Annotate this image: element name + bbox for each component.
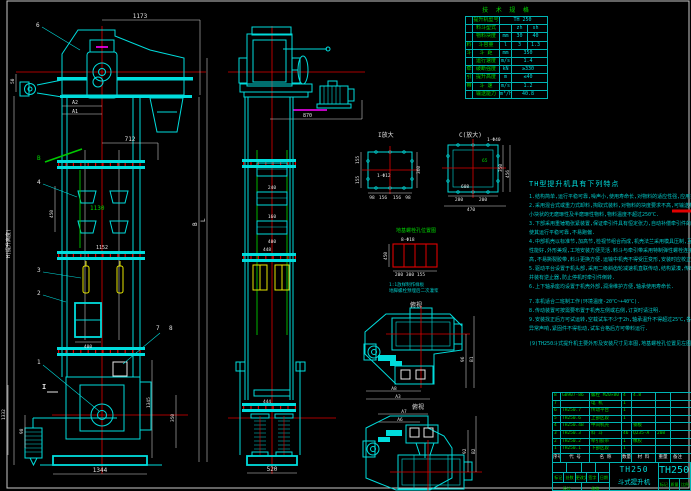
dim-240: 240 xyxy=(268,185,276,191)
bom-cell: 牵引胶带 xyxy=(590,439,622,446)
note-line: 1.结构简单,运行平稳可靠,噪声小,使用寿命长,对物料的适应性强,应用范围广. xyxy=(529,193,690,202)
dim-50: 50 xyxy=(10,78,16,84)
dim-a1: A1 xyxy=(72,109,78,115)
bom-header-cell: 序号 xyxy=(553,454,561,462)
bom-row: 6TH250.7传动平台1 xyxy=(553,408,691,416)
anchor-dim-155: 155 xyxy=(417,272,425,278)
balloon-7: 7 xyxy=(156,325,160,332)
bom-cell xyxy=(656,416,671,423)
spec-cell: 350 xyxy=(511,50,544,57)
bom-cell: 1 xyxy=(622,416,632,423)
spec-row: 料斗容量l31.3 xyxy=(466,41,547,49)
dim-a6: A6 xyxy=(397,417,403,423)
bom-cell xyxy=(656,446,671,453)
dim-1332: 1332 xyxy=(1,409,7,420)
bom-cell: TH250.6 xyxy=(561,416,590,423)
spec-cell: 料斗型式 xyxy=(472,25,499,32)
spec-cell: 3 xyxy=(511,42,527,49)
spec-cell: 斗容量 xyxy=(472,42,499,49)
dim-608: 608 xyxy=(461,184,469,190)
bom-cell: TH250.1 xyxy=(561,446,590,453)
dim-b2: B2 xyxy=(471,448,477,454)
spec-cell: 30 xyxy=(511,33,527,40)
bom-row: 8GB907-86螺栓 M20×8044.8 xyxy=(553,393,691,401)
bom-cell xyxy=(671,401,684,408)
spec-row: 物料块度mm3040 xyxy=(466,32,547,40)
spec-row: 牵破断强度kN≥330 xyxy=(466,65,547,73)
bom-row: 7电 机1 xyxy=(553,401,691,409)
note-line: 4.中部机壳以标准节,加高节,检视节组合而成,机壳法兰采用模具压制,互换性好,密… xyxy=(529,238,690,247)
spec-cell: 运行速度 xyxy=(472,58,499,65)
spec-cell: 1.4 xyxy=(511,58,544,65)
note-line: 高,不易撕裂胶带,料斗更换方便.运输中机壳不得受压变形,安装时应校正垂直度. xyxy=(529,256,690,265)
detail-c-title: C(放大) xyxy=(459,131,482,139)
title-block-cell: 标记 xyxy=(659,479,670,491)
note-line: 8.传动装置可按需要布置于机壳左侧或右侧,订货时请注明. xyxy=(529,307,690,316)
bom-cell: 4 xyxy=(553,423,561,430)
dim-470: 470 xyxy=(467,207,475,213)
drive-station-top-view-2: 俯视 A7 A6 92 B2 xyxy=(363,403,482,491)
anchor-note-2: 地脚螺栓预埋后二次灌浆 xyxy=(389,287,439,294)
anchor-note-1: 1:1放样制作样板 xyxy=(389,281,425,288)
spec-cell: 1.3 xyxy=(527,42,543,49)
dim-1345: 1345 xyxy=(146,397,152,408)
spec-cell: 斗 距 xyxy=(472,50,499,57)
product-model: TH250 xyxy=(610,463,658,476)
bom-cell: 7 xyxy=(553,401,561,408)
spec-cell: l xyxy=(499,42,511,49)
title-block-product: TH250 斗式提升机 xyxy=(610,463,659,490)
spec-cell: mm xyxy=(499,33,511,40)
bom-row: 3TH250.3料 斗46Q235-A208 xyxy=(553,431,691,439)
spec-row: 带斗 速m/s1.2 xyxy=(466,82,547,90)
bom-cell: 8 xyxy=(553,393,561,400)
bom-cell: 上部区段 xyxy=(590,416,622,423)
dim-160: 160 xyxy=(268,214,276,220)
note-line: 3.下部采用重锤箱张紧装置,保证牵引件具有恒定张力,自动补偿牵引件的永久伸长, xyxy=(529,220,690,229)
bom-cell: 中间机壳 xyxy=(590,423,622,430)
spec-cell: 提升高度 xyxy=(472,74,499,81)
balloon-3: 3 xyxy=(37,267,41,274)
dim-350c: 350 xyxy=(498,164,504,172)
note-line: 使其运行平稳可靠,不易跑偏. xyxy=(529,229,690,238)
dim-96: 96 xyxy=(460,356,466,362)
title-block-row: 设计 校核 xyxy=(553,483,609,491)
spec-cell: mm xyxy=(499,50,511,57)
bom-cell: Q235-A xyxy=(632,431,656,438)
anchor-dim-450: 450 xyxy=(383,252,389,260)
dim-98: 98 xyxy=(19,428,25,434)
title-block-cell: 标记 xyxy=(553,473,564,482)
anchor-bolt-plan: 地基螺栓孔位置图 8-Φ18 200 300 155 450 1:1放样制作样板… xyxy=(383,227,439,294)
cad-drawing-canvas[interactable]: 1173 6 50 A2 A1 1130 450 712 4 xyxy=(0,0,691,491)
anchor-dim-300: 300 xyxy=(406,272,414,278)
bom-cell xyxy=(671,416,684,423)
dim-letter-l: L xyxy=(200,218,207,222)
detail-c-hole-note: 1-Φ40 xyxy=(487,137,501,143)
spec-cell: TH 250 xyxy=(499,17,545,24)
title-block-cell: 设计 xyxy=(553,483,582,491)
dim-448: 448 xyxy=(263,247,271,253)
bom-cell: 1 xyxy=(622,401,632,408)
dim-a2: A2 xyxy=(72,100,78,106)
note-line: (9)TH250斗式提升机主要外形及安装尺寸见本图,地基螺栓孔位置见左图所示 供… xyxy=(529,340,690,349)
dim-450: 450 xyxy=(49,210,55,218)
bom-header-cell: 数量 xyxy=(622,454,632,462)
note-line: 9.安装找正后方可试运转,空载试车不少于2h,轴承温升不得超过25℃,各部位不得… xyxy=(529,316,690,325)
bom-cell: 料 斗 xyxy=(590,431,622,438)
title-block-cell: 日期 xyxy=(599,473,609,482)
bom-cell: TH250.2 xyxy=(561,439,590,446)
front-elevation-view: 1173 6 50 A2 A1 1130 450 712 4 xyxy=(1,13,207,474)
detail-c-view: C(放大) 1-Φ40 608 65 280 200 470 350 456 xyxy=(442,131,511,213)
drive2-label: 俯视 xyxy=(412,403,424,411)
spec-cell: 1.2 xyxy=(511,83,544,90)
dim-155b: 155 xyxy=(355,176,361,184)
title-block-cell xyxy=(567,463,581,472)
dim-1344: 1344 xyxy=(93,467,108,474)
bom-cell xyxy=(622,423,632,430)
dim-1152: 1152 xyxy=(96,245,108,251)
bom-cell: TH250.7 xyxy=(561,408,590,415)
dim-a8: A8 xyxy=(391,386,397,392)
bom-cell: 6 xyxy=(553,408,561,415)
bom-cell: 1 xyxy=(622,408,632,415)
bom-cell: 螺栓 M20×80 xyxy=(590,393,622,400)
dim-200: 200 xyxy=(479,197,487,203)
spec-cell: 40.8 xyxy=(511,91,544,98)
bom-cell: 传动平台 xyxy=(590,408,622,415)
parts-list-table: 8GB907-86螺栓 M20×8044.8 7电 机1 6TH250.7传动平… xyxy=(552,392,691,463)
spec-row: 料斗型式zhsh xyxy=(466,24,547,32)
bom-cell: 208 xyxy=(656,431,671,438)
notes-title: TH型提升机具有下列特点 xyxy=(529,179,690,189)
dim-520: 520 xyxy=(267,466,278,473)
dim-letter-b: B xyxy=(192,222,199,226)
bom-header-cell: 重量 xyxy=(656,454,671,462)
bom-cell xyxy=(561,401,590,408)
dim-1173: 1173 xyxy=(133,13,148,20)
anchor-dim-200: 200 xyxy=(395,272,403,278)
bom-row: 5TH250.6上部区段1 xyxy=(553,416,691,424)
dim-1130: 1130 xyxy=(90,205,105,212)
bom-cell xyxy=(656,439,671,446)
bom-header-cell: 材 料 xyxy=(632,454,656,462)
bom-cell: 4.8 xyxy=(632,393,656,400)
feature-notes: TH型提升机具有下列特点 1.结构简单,运行平稳可靠,噪声小,使用寿命长,对物料… xyxy=(529,179,690,349)
bom-header-cell: 备注 xyxy=(671,454,684,462)
dim-65: 65 xyxy=(482,158,488,164)
bom-cell: 橡胶 xyxy=(632,439,656,446)
bom-cell: 3 xyxy=(553,431,561,438)
bom-cell: 下部区段 xyxy=(590,446,622,453)
dim-a7: A7 xyxy=(401,409,407,415)
spec-cell: ≤40 xyxy=(511,74,544,81)
bom-cell: 钢板 xyxy=(632,423,656,430)
note-line: 并装有逆止器,防止停机时牵引件倒转. xyxy=(529,274,690,283)
spec-cell: m xyxy=(499,74,511,81)
balloon-8: 8 xyxy=(169,325,173,332)
spec-cell: zh xyxy=(511,25,527,32)
bom-cell: 1 xyxy=(622,446,632,453)
bom-cell xyxy=(671,423,684,430)
bom-cell xyxy=(632,416,656,423)
dim-400: 400 xyxy=(84,344,92,350)
balloon-2: 2 xyxy=(37,290,41,297)
section-i-label: I xyxy=(42,383,46,391)
spec-cell: m³/h xyxy=(499,91,511,98)
bom-row: 2TH250.2牵引胶带1橡胶 xyxy=(553,439,691,447)
bom-cell xyxy=(656,423,671,430)
drawing-number: TH250 xyxy=(659,463,690,479)
spec-row: 引提升高度m≤40 xyxy=(466,73,547,81)
dim-98b: 98 xyxy=(405,195,411,201)
note-line: 2.采用混合式或重力式卸料,掏取式装料,对物料的块度要求不高,可输送粉状,粒状及 xyxy=(529,202,690,211)
note-line: 异常声响,紧固件不得松动,试车合格后方可带料运行. xyxy=(529,325,690,334)
bom-header-cell: 名 称 xyxy=(590,454,622,462)
anchor-plan-title: 地基螺栓孔位置图 xyxy=(396,227,436,234)
bom-cell xyxy=(656,401,671,408)
dim-98a: 98 xyxy=(369,195,375,201)
dim-155a: 155 xyxy=(355,156,361,164)
side-elevation-view: 870 240 160 400 448 444 xyxy=(228,26,365,474)
note-line-text: 5.驱动平台设置于机头部,采用二级斜齿轮减速机直联传动,结构紧凑,传动效率高 xyxy=(529,266,691,272)
bom-cell: TH250.3 xyxy=(561,431,590,438)
bom-cell: 1 xyxy=(553,446,561,453)
title-block-cell xyxy=(596,463,609,472)
bom-cell: 2 xyxy=(553,439,561,446)
note-line: 5.驱动平台设置于机头部,采用二级斜齿轮减速机直联传动,结构紧凑,传动效率高(见… xyxy=(529,265,690,274)
spec-cell: m/s xyxy=(499,83,511,90)
bom-cell xyxy=(656,393,671,400)
title-block-cell: 比例 xyxy=(680,479,690,491)
spec-row: 输送能力m³/h40.8 xyxy=(466,90,547,98)
bom-cell xyxy=(656,408,671,415)
spec-row: 运行速度m/s1.4 xyxy=(466,57,547,65)
balloon-6: 6 xyxy=(36,22,40,29)
title-block-row xyxy=(553,463,609,473)
bom-cell: 46 xyxy=(622,431,632,438)
spec-row: 提升机型号TH 250 xyxy=(466,17,547,24)
drive-station-top-view-1: 俯视 96 B1 A8 A3 xyxy=(364,301,475,400)
height-note: H(提升高度) xyxy=(5,229,12,258)
bom-cell: TH250.4B xyxy=(561,423,590,430)
spec-cell: ≥330 xyxy=(511,66,544,73)
bom-cell xyxy=(671,393,684,400)
dim-712: 712 xyxy=(125,136,136,143)
note-line: 7.本机适合二班制工作(环境温度-20℃~+40℃). xyxy=(529,298,690,307)
dim-456: 456 xyxy=(505,170,511,178)
spec-cell: 40 xyxy=(527,33,543,40)
anchor-hole-note: 8-Φ18 xyxy=(401,237,415,243)
spec-cell: 输送能力 xyxy=(472,91,499,98)
bom-cell xyxy=(671,439,684,446)
title-block-cell: 处数 xyxy=(564,473,575,482)
dim-280: 280 xyxy=(455,197,463,203)
bom-cell: 5 xyxy=(553,416,561,423)
bom-cell: GB907-86 xyxy=(561,393,590,400)
title-block-row: 标记 质量 比例 xyxy=(659,479,690,491)
dim-350: 350 xyxy=(170,414,176,422)
dim-b1: B1 xyxy=(469,356,475,362)
spec-cell: 斗 速 xyxy=(472,83,499,90)
spec-table-title: 技 术 规 格 xyxy=(465,5,548,16)
dim-a3: A3 xyxy=(395,394,401,400)
title-block-signature-area: 标记 处数 更改文件号 签字 日期 设计 校核 xyxy=(553,463,610,490)
title-block: 标记 处数 更改文件号 签字 日期 设计 校核 TH250 斗式提升机 TH25… xyxy=(552,462,691,491)
note-line: 性能好,外形美观,工地安装方便灵活.料斗与牵引带采用特制弹性螺栓连接,连接强度 xyxy=(529,247,690,256)
title-block-cell xyxy=(553,463,567,472)
spec-cell: m/s xyxy=(499,58,511,65)
spec-cell: sh xyxy=(527,25,543,32)
spec-row: 斗斗 距mm350 xyxy=(466,49,547,57)
title-block-cell: 校核 xyxy=(582,483,610,491)
spec-table-grid: 提升机型号TH 250 料斗型式zhsh 物料块度mm3040 料斗容量l31.… xyxy=(465,16,548,99)
bom-header-cell: 代 号 xyxy=(561,454,590,462)
detail-i-hole-note: 1-Φ12 xyxy=(377,173,391,179)
title-block-row: 标记 处数 更改文件号 签字 日期 xyxy=(553,473,609,483)
bom-cell xyxy=(671,446,684,453)
spec-cell: 破断强度 xyxy=(472,66,499,73)
spec-cell xyxy=(499,25,511,32)
title-block-cell: 更改文件号 xyxy=(576,473,587,482)
spec-cell: 提升机型号 xyxy=(472,17,499,24)
bom-row: 1TH250.1下部区段1 xyxy=(553,446,691,454)
detail-i-title: I放大 xyxy=(378,131,394,139)
bom-row: 4TH250.4B中间机壳钢板 xyxy=(553,423,691,431)
note-line: 6.上下轴承座均设置于机壳外部,润滑维护方便,轴承使用寿命长. xyxy=(529,283,690,292)
detail-i-view: I放大 1-Φ12 155 155 360 98 156 156 98 xyxy=(355,131,422,201)
section-b-label: B xyxy=(37,155,41,162)
bom-header-row: 序号代 号名 称数量材 料重量备注 xyxy=(553,454,691,462)
dim-444: 444 xyxy=(263,399,271,405)
bom-cell: 电 机 xyxy=(590,401,622,408)
balloon-4: 4 xyxy=(37,179,41,186)
spec-cell: 物料块度 xyxy=(472,33,499,40)
balloon-1: 1 xyxy=(37,359,41,366)
dim-360: 360 xyxy=(416,166,422,174)
title-block-drawing-no-area: TH250 标记 质量 比例 xyxy=(659,463,690,490)
dim-400b: 400 xyxy=(268,239,276,245)
dim-156b: 156 xyxy=(393,195,401,201)
bom-cell: 1 xyxy=(622,439,632,446)
bom-cell xyxy=(632,408,656,415)
dim-92: 92 xyxy=(462,448,468,454)
title-block-cell: 签字 xyxy=(587,473,598,482)
bom-cell xyxy=(632,401,656,408)
product-name: 斗式提升机 xyxy=(610,476,658,488)
title-block-cell xyxy=(582,463,596,472)
bom-cell xyxy=(671,431,684,438)
spec-cell: kN xyxy=(499,66,511,73)
title-block-cell: 质量 xyxy=(670,479,681,491)
bom-cell xyxy=(671,408,684,415)
bom-cell: 4 xyxy=(622,393,632,400)
dim-870: 870 xyxy=(303,113,312,119)
spec-table: 技 术 规 格 提升机型号TH 250 料斗型式zhsh 物料块度mm3040 … xyxy=(465,5,548,99)
bom-cell xyxy=(632,446,656,453)
note-line: 小块状的无磨琢性及半磨琢性物料,物料温度不超过250℃. xyxy=(529,211,690,220)
dim-156a: 156 xyxy=(379,195,387,201)
